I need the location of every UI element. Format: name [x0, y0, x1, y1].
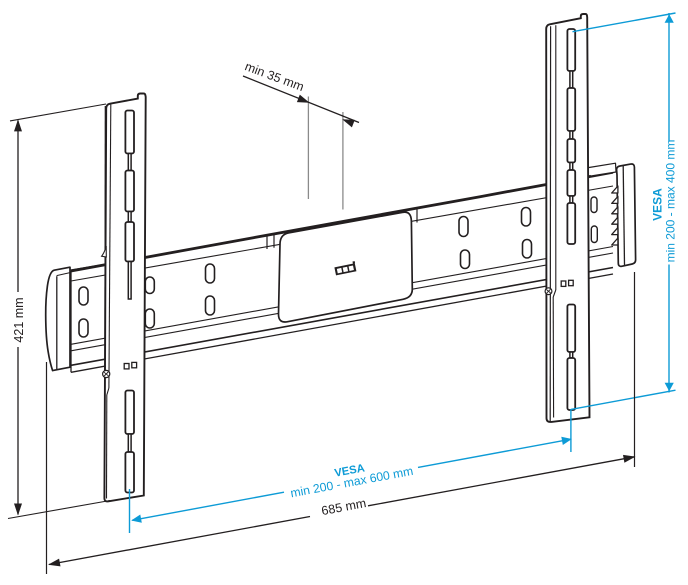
svg-text:421 mm: 421 mm: [12, 297, 26, 342]
svg-text:min 200 - max 400 mm: min 200 - max 400 mm: [664, 140, 678, 263]
svg-text:VESA: VESA: [651, 188, 665, 221]
